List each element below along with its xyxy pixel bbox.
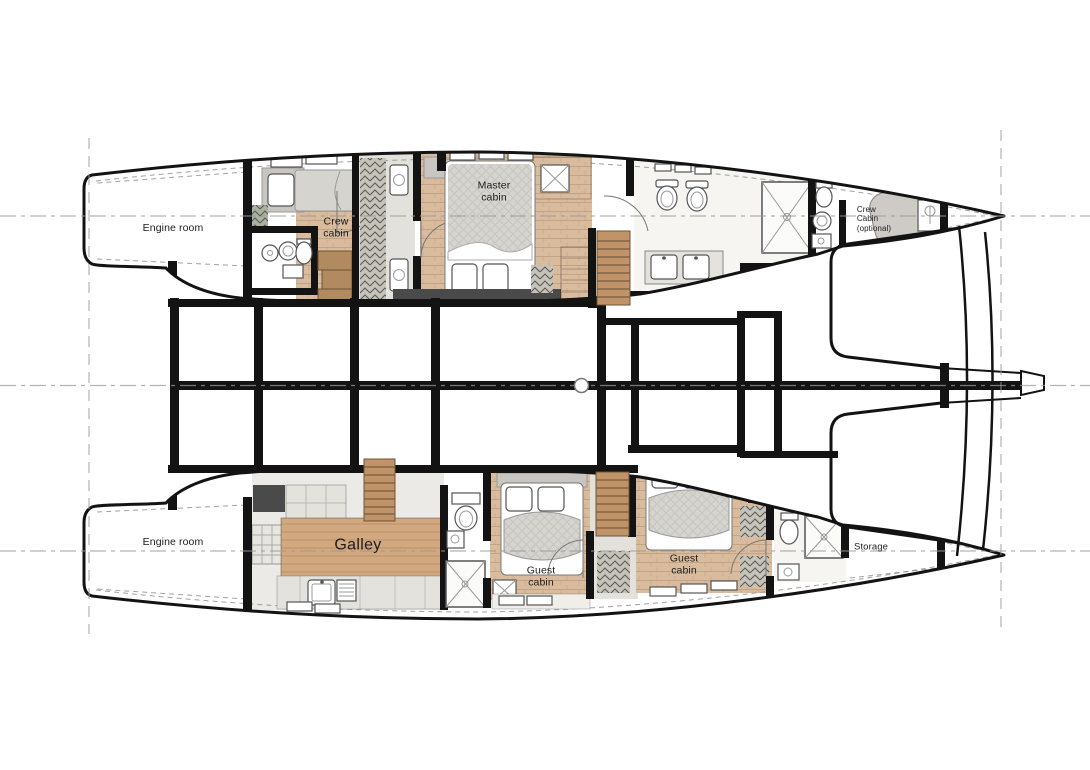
toilet-icon — [687, 187, 707, 211]
stove-icon — [337, 580, 356, 601]
bowsprit-tip — [1021, 371, 1044, 395]
crew-bed — [262, 168, 355, 212]
engine-room-port-label: Engine room — [143, 222, 204, 234]
bridgedeck-structure — [168, 296, 1022, 473]
engine-room-starboard-label: Engine room — [143, 536, 204, 548]
sink-icon — [262, 245, 278, 261]
sink-icon — [812, 234, 831, 248]
guest-stairs — [596, 472, 629, 536]
toilet-icon — [455, 506, 477, 530]
guest-cabin-mid-label: Guest cabin — [670, 553, 699, 578]
toilet-icon — [657, 186, 677, 210]
washer-icon — [279, 242, 297, 260]
master-stairs — [597, 231, 630, 305]
hatch-fan-icon — [390, 259, 408, 291]
toilet-icon — [780, 520, 798, 544]
toilet-icon — [296, 242, 312, 264]
guest-cabin-fwd-label: Guest cabin — [527, 565, 556, 590]
crossbeam-line — [983, 232, 993, 550]
crossbeam-line — [957, 226, 967, 556]
crew-cabin-label: Crew cabin — [323, 216, 349, 241]
sink-icon — [778, 564, 799, 580]
galley-stairs — [364, 459, 395, 521]
deck-plan-canvas: Engine room Engine room Crew cabin Maste… — [0, 0, 1090, 770]
foredeck-structure — [831, 226, 1044, 556]
dresser — [561, 247, 590, 302]
crew-steps — [318, 251, 352, 304]
crew-cabin-optional-label: Crew Cabin (optional) — [857, 205, 891, 233]
fridge — [253, 485, 285, 512]
galley-label: Galley — [334, 537, 381, 556]
hatch-fan-icon — [390, 165, 408, 195]
storage-label: Storage — [854, 541, 888, 552]
master-cabin-label: Master cabin — [478, 180, 511, 205]
center-fitting — [575, 379, 589, 393]
sink-icon — [447, 531, 464, 548]
floorplan-svg — [0, 0, 1090, 770]
toilet-icon — [816, 187, 832, 207]
washer-icon — [813, 212, 831, 230]
